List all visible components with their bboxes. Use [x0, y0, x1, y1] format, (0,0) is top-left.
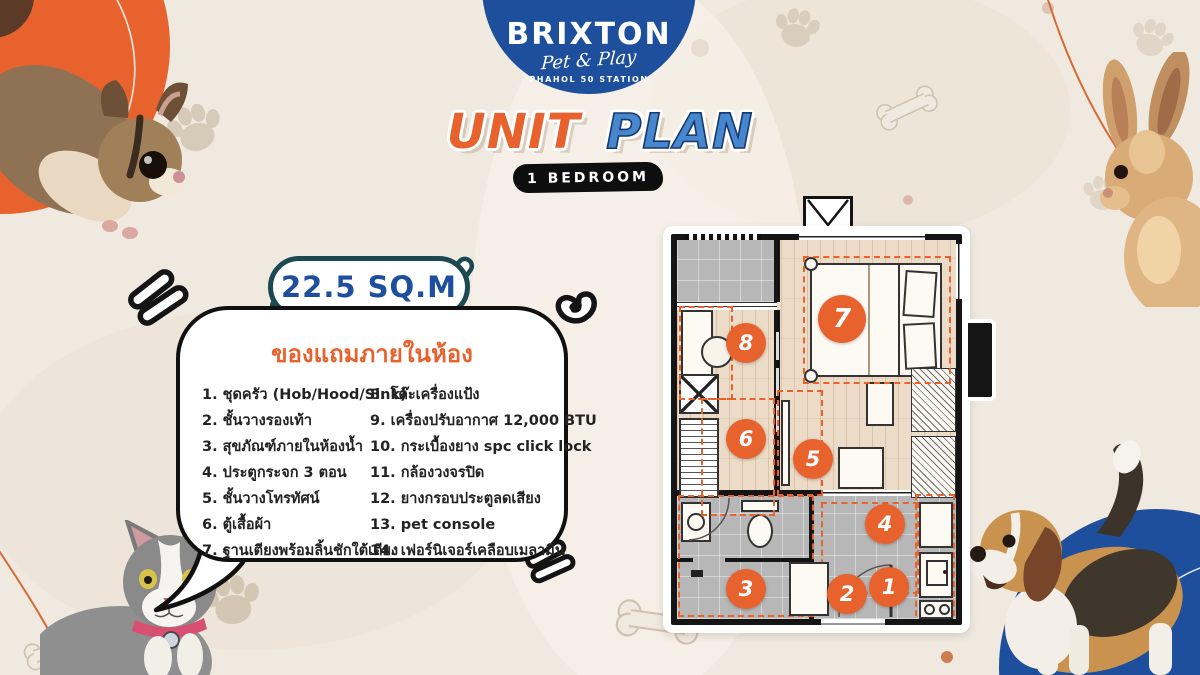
plan-marker-7: 7 — [818, 295, 866, 343]
freebie-item: 8. โต๊ะเครื่องแป้ง — [370, 385, 597, 406]
plan-outline: 1 2 3 4 5 6 7 8 — [663, 226, 970, 633]
freebie-item: 5. ชั้นวางโทรทัศน์ — [202, 489, 370, 510]
plan-marker-8: 8 — [726, 323, 766, 363]
area-value: 22.5 SQ.M — [281, 270, 457, 304]
ac-condenser-symbol — [803, 196, 853, 230]
title-plan: PLAN — [606, 104, 753, 160]
brand-name: BRIXTON — [506, 20, 671, 50]
poster-canvas: BRIXTON Pet & Play PHAHOL 50 STATION UNI… — [0, 0, 1200, 675]
freebie-item: 1. ชุดครัว (Hob/Hood/Sink) — [202, 385, 370, 406]
title-unit: UNIT — [447, 104, 581, 160]
freebie-item: 2. ชั้นวางรองเท้า — [202, 411, 370, 432]
freebies-heading: ของแถมภายในห้อง — [180, 334, 564, 373]
freebie-item: 10. กระเบื้องยาง spc click lock — [370, 437, 597, 458]
freebie-item: 13. pet console — [370, 515, 597, 536]
freebies-column-right: 8. โต๊ะเครื่องแป้ง 9. เครื่องปรับอากาศ 1… — [370, 385, 597, 562]
freebie-item: 3. สุขภัณฑ์ภายในห้องน้ำ — [202, 437, 370, 458]
entrance-opening — [821, 619, 885, 625]
plant — [911, 436, 956, 498]
plan-marker-5: 5 — [793, 439, 833, 479]
chair — [838, 447, 884, 489]
plan-marker-3: 3 — [726, 569, 766, 609]
rabbit-photo — [1075, 52, 1200, 307]
bedroom-banner-label: 1 BEDROOM — [527, 168, 649, 186]
plan-marker-4: 4 — [865, 504, 905, 544]
brand-station: PHAHOL 50 STATION — [529, 75, 648, 84]
plan-marker-6: 6 — [726, 419, 766, 459]
plan-marker-1: 1 — [869, 567, 909, 607]
freebie-item: 12. ยางกรอบประตูลดเสียง — [370, 489, 597, 510]
wall — [774, 240, 780, 302]
freebie-item: 14. เฟอร์นิเจอร์เคลือบเมลามีน — [370, 541, 597, 562]
balcony — [677, 240, 777, 302]
glass-door-panel — [776, 332, 779, 360]
freebies-column-left: 1. ชุดครัว (Hob/Hood/Sink) 2. ชั้นวางรอง… — [202, 385, 370, 562]
freebies-bubble: ของแถมภายในห้อง 1. ชุดครัว (Hob/Hood/Sin… — [176, 306, 568, 562]
freebie-item: 4. ประตูกระจก 3 ตอน — [202, 463, 370, 484]
ac-ledge — [968, 319, 996, 401]
plan-walls: 1 2 3 4 5 6 7 8 — [671, 234, 962, 625]
freebies-list: 1. ชุดครัว (Hob/Hood/Sink) 2. ชั้นวางรอง… — [202, 385, 564, 562]
side-window — [956, 244, 962, 299]
freebie-item: 6. ตู้เสื้อผ้า — [202, 515, 370, 536]
freebie-item: 7. ฐานเตียงพร้อมลิ้นชักใต้เตียง — [202, 541, 370, 562]
plan-interior: 1 2 3 4 5 6 7 8 — [677, 240, 956, 619]
bedroom-banner: 1 BEDROOM — [513, 162, 663, 194]
kitchen-highlight — [915, 494, 955, 619]
plan-marker-2: 2 — [827, 574, 867, 614]
page-title: UNIT PLAN — [0, 108, 1200, 156]
vanity-highlight — [679, 306, 733, 400]
freebie-item: 9. เครื่องปรับอากาศ 12,000 BTU — [370, 411, 597, 432]
entry-closet — [789, 562, 829, 616]
side-table — [866, 382, 894, 426]
floor-plan: 1 2 3 4 5 6 7 8 — [655, 190, 1000, 652]
freebie-item: 11. กล้องวงจรปิด — [370, 463, 597, 484]
